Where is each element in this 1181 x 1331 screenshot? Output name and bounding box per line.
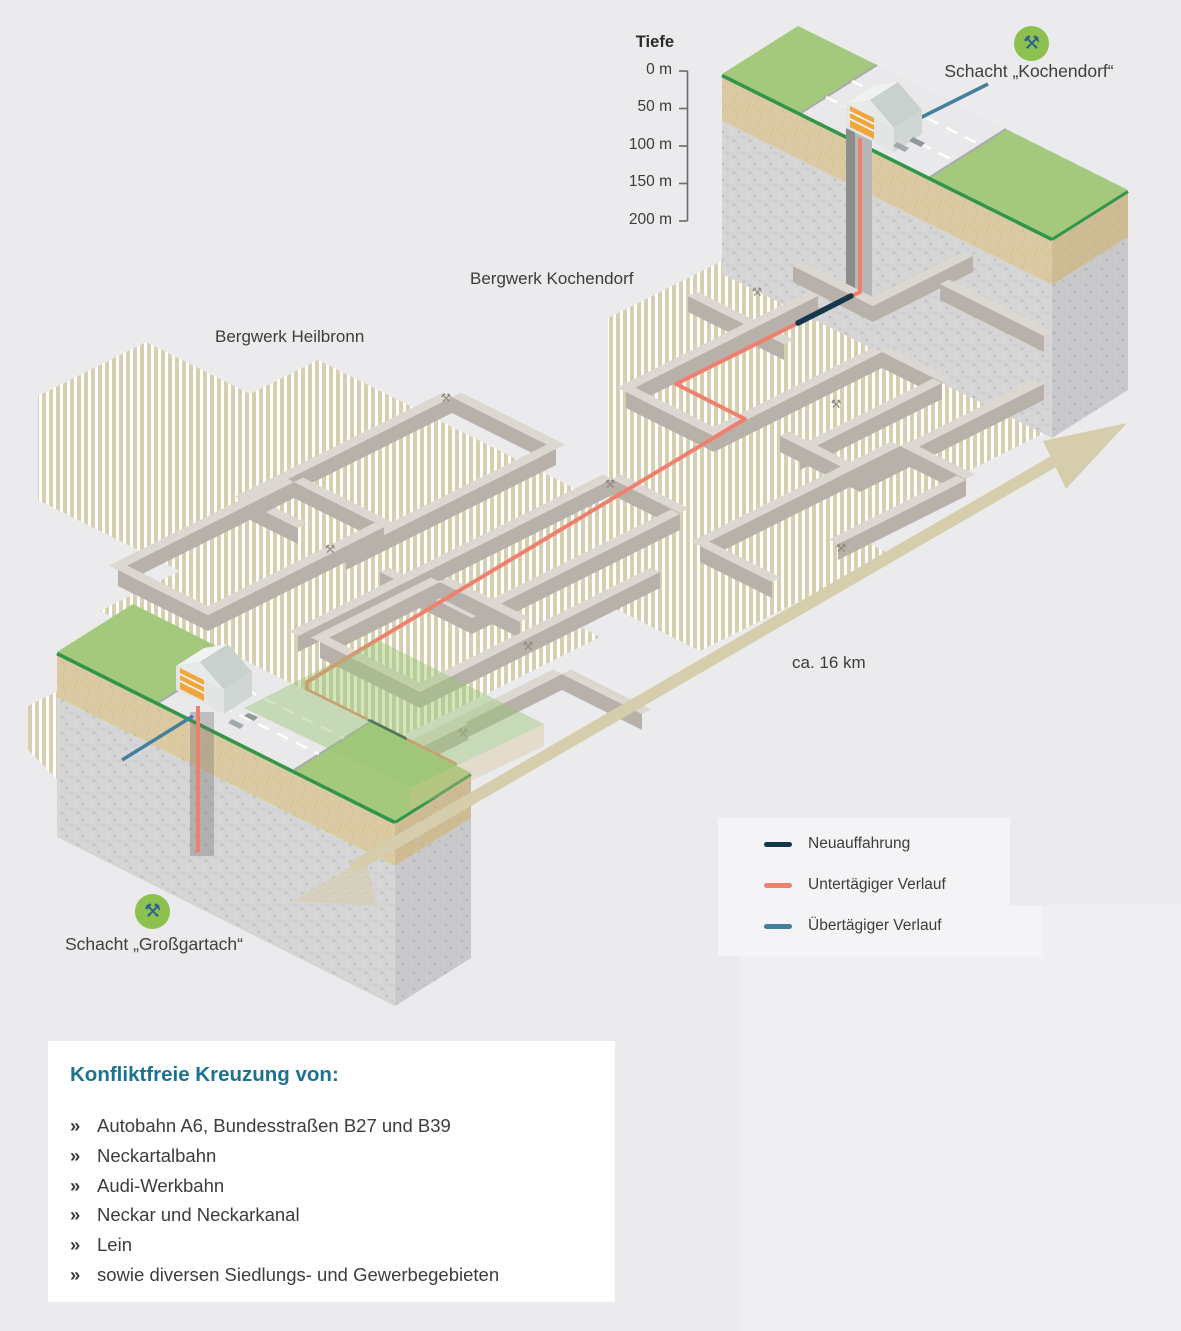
list-item: »Neckartalbahn [70, 1141, 615, 1171]
legend-label: Neuauffahrung [808, 835, 910, 853]
legend-panel [718, 818, 1010, 914]
depth-scale-title: Tiefe [574, 33, 674, 52]
label-schacht-kochendorf: Schacht „Kochendorf“ [938, 61, 1120, 82]
info-box: Konfliktfreie Kreuzung von: »Autobahn A6… [48, 1041, 615, 1302]
legend-swatch-underground [764, 883, 792, 888]
depth-tick-200: 200 m [572, 211, 672, 229]
background-panel [740, 905, 1181, 1331]
legend-label: Untertägiger Verlauf [808, 876, 946, 894]
list-item: »Autobahn A6, Bundesstraßen B27 und B39 [70, 1111, 615, 1141]
legend-swatch-new [764, 842, 792, 847]
crossed-hammers-icon: ⚒ [605, 477, 616, 491]
legend-swatch-surface [764, 924, 792, 929]
crossed-hammers-icon: ⚒ [135, 894, 170, 929]
diagram-stage: ⚒⚒⚒⚒⚒⚒⚒⚒ [0, 0, 1181, 1331]
shaft-column-grossgartach [190, 712, 214, 856]
depth-tick-50: 50 m [572, 98, 672, 116]
legend-item-untertaegig: Untertägiger Verlauf [764, 875, 946, 895]
depth-tick-150: 150 m [572, 173, 672, 191]
crossed-hammers-icon: ⚒ [831, 397, 842, 411]
depth-tick-0: 0 m [572, 61, 672, 79]
legend-label: Übertägiger Verlauf [808, 917, 942, 935]
depth-scale [679, 71, 688, 221]
label-distance: ca. 16 km [792, 653, 866, 673]
label-bergwerk-heilbronn: Bergwerk Heilbronn [215, 327, 364, 347]
info-box-list: »Autobahn A6, Bundesstraßen B27 und B39 … [48, 1111, 615, 1290]
list-item: »sowie diversen Siedlungs- und Gewerbege… [70, 1260, 615, 1290]
legend-item-neuauffahrung: Neuauffahrung [764, 834, 910, 854]
crossed-hammers-icon: ⚒ [441, 391, 452, 405]
list-item: »Audi-Werkbahn [70, 1171, 615, 1201]
list-item: »Lein [70, 1230, 615, 1260]
label-schacht-grossgartach: Schacht „Großgartach“ [62, 934, 246, 955]
depth-tick-100: 100 m [572, 136, 672, 154]
crossed-hammers-icon: ⚒ [836, 541, 847, 555]
list-item: »Neckar und Neckarkanal [70, 1200, 615, 1230]
crossed-hammers-icon: ⚒ [752, 285, 763, 299]
crossed-hammers-icon: ⚒ [523, 639, 534, 653]
label-bergwerk-kochendorf: Bergwerk Kochendorf [470, 269, 633, 289]
info-box-heading: Konfliktfreie Kreuzung von: [70, 1063, 615, 1087]
legend-item-uebertaegig: Übertägiger Verlauf [764, 916, 942, 936]
crossed-hammers-icon: ⚒ [1014, 26, 1049, 61]
crossed-hammers-icon: ⚒ [325, 542, 336, 556]
